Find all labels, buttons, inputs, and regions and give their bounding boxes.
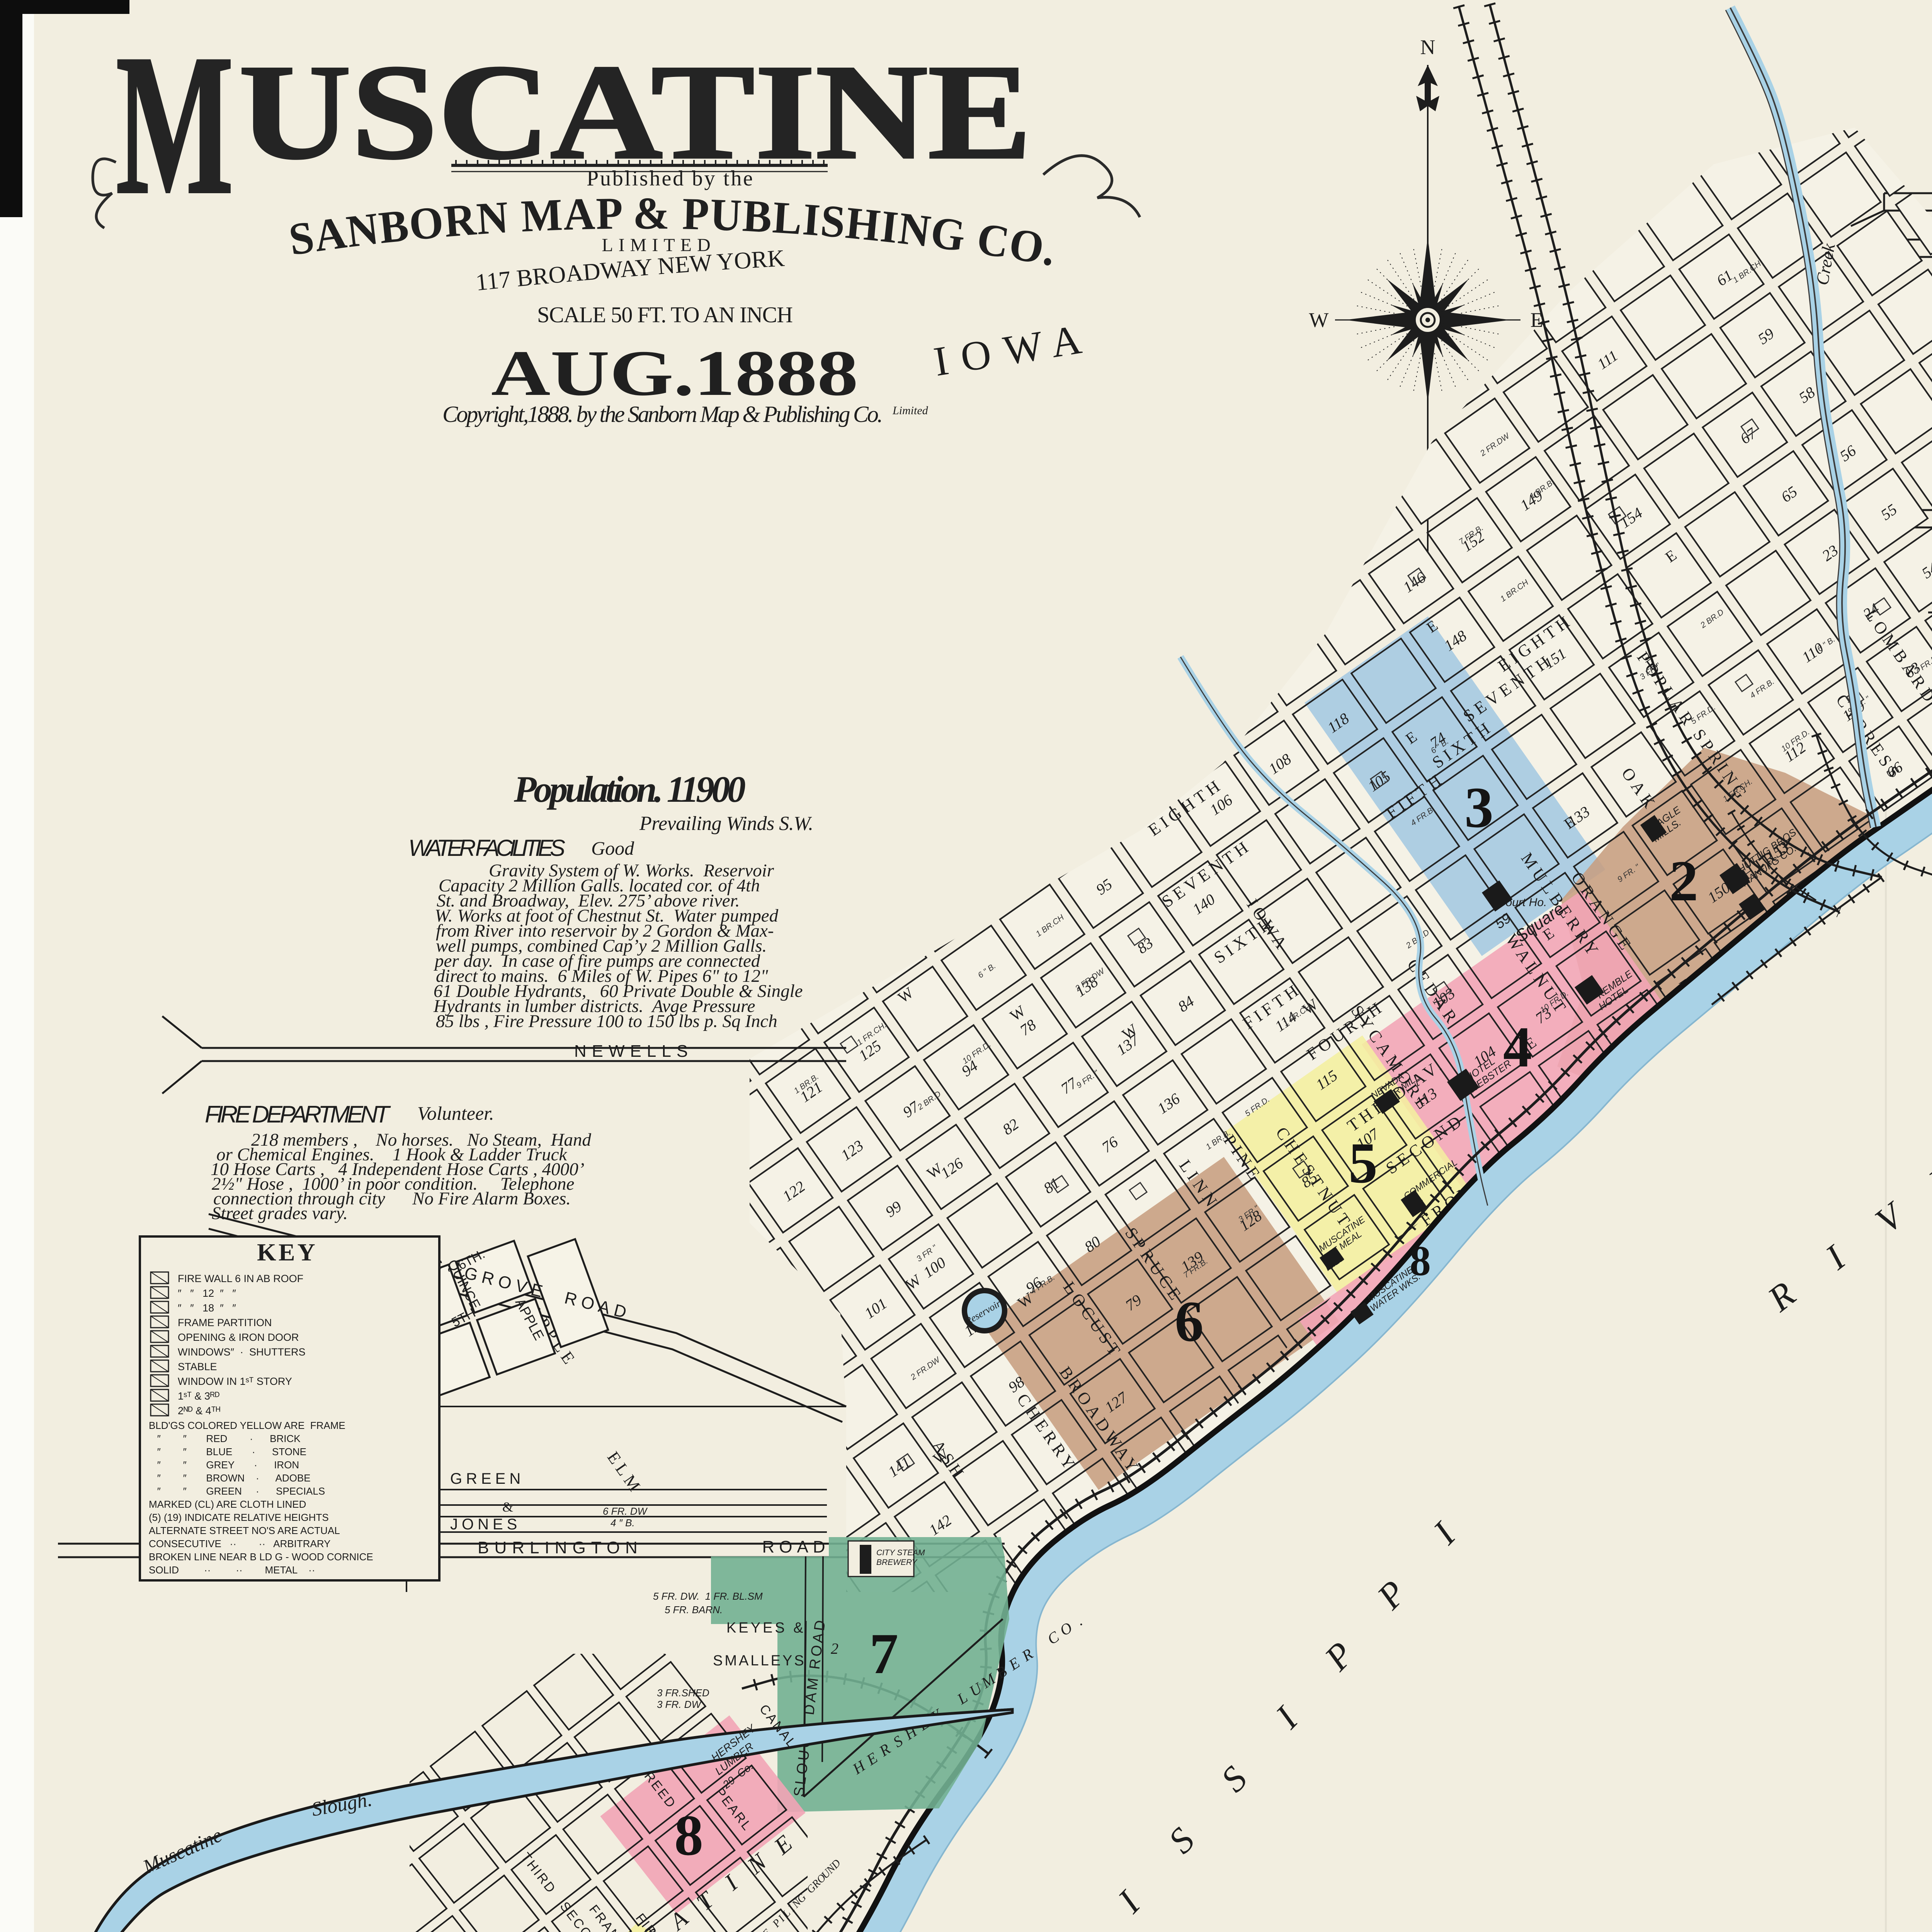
svg-text:2ᴺᴰ & 4ᵀᴴ: 2ᴺᴰ & 4ᵀᴴ xyxy=(178,1405,220,1417)
svg-text:Limited: Limited xyxy=(892,404,929,417)
svg-text:3 FR.SHED: 3 FR.SHED xyxy=(657,1687,709,1699)
svg-text:85 lbs , Fire Pressure 100 to: 85 lbs , Fire Pressure 100 to 150 lbs p.… xyxy=(436,1011,777,1031)
svg-text:3: 3 xyxy=(1464,776,1493,840)
svg-text:8: 8 xyxy=(674,1803,703,1867)
svg-text:″ ″ BROWN ·: ″ ″ BROWN · ADOBE xyxy=(149,1472,311,1484)
svg-text:GREEN: GREEN xyxy=(450,1470,524,1487)
svg-text:1ˢᵀ & 3ᴿᴰ: 1ˢᵀ & 3ᴿᴰ xyxy=(178,1390,219,1402)
svg-text:KEYES &: KEYES & xyxy=(726,1620,806,1636)
svg-text:ALTERNATE STREET NO'S ARE ACTU: ALTERNATE STREET NO'S ARE ACTUAL xyxy=(149,1525,340,1536)
svg-text:&: & xyxy=(502,1499,513,1515)
svg-text:(5) (19) INDICATE RELATIVE HEI: (5) (19) INDICATE RELATIVE HEIGHTS xyxy=(149,1512,329,1523)
svg-text:″ ″ GREY ·: ″ ″ GREY · IRON xyxy=(149,1459,299,1471)
svg-text:BURLINGTON: BURLINGTON xyxy=(478,1538,643,1557)
svg-text:7: 7 xyxy=(869,1622,898,1686)
svg-text:Volunteer.: Volunteer. xyxy=(417,1102,494,1124)
svg-text:″ ″ 12 ″ ″: ″ ″ 12 ″ ″ xyxy=(178,1287,236,1299)
svg-text:SMALLEYS: SMALLEYS xyxy=(713,1653,806,1669)
svg-text:JONES: JONES xyxy=(450,1516,521,1533)
svg-text:W: W xyxy=(1309,308,1329,332)
svg-text:WINDOW IN 1ˢᵀ STORY: WINDOW IN 1ˢᵀ STORY xyxy=(178,1376,292,1387)
svg-text:FRAME PARTITION: FRAME PARTITION xyxy=(178,1317,272,1328)
svg-text:5 FR. DW. 1 FR. BL.SM: 5 FR. DW. 1 FR. BL.SM xyxy=(653,1590,763,1602)
svg-text:STABLE: STABLE xyxy=(178,1361,217,1372)
svg-text:Population. 11900: Population. 11900 xyxy=(514,769,746,810)
svg-text:CONSECUTIVE ·· ·· A: CONSECUTIVE ·· ·· ARBITRARY xyxy=(149,1538,330,1549)
svg-text:N: N xyxy=(1420,36,1435,59)
svg-text:5 FR. BARN.: 5 FR. BARN. xyxy=(665,1604,723,1616)
svg-text:OPENING & IRON DOOR: OPENING & IRON DOOR xyxy=(178,1332,299,1343)
svg-text:Good: Good xyxy=(591,837,634,859)
svg-text:BROKEN LINE NEAR B LD G - WOOD: BROKEN LINE NEAR B LD G - WOOD CORNICE xyxy=(149,1551,373,1563)
svg-text:Prevailing Winds S.W.: Prevailing Winds S.W. xyxy=(639,813,813,835)
svg-text:MARKED (CL) ARE CLOTH LINED: MARKED (CL) ARE CLOTH LINED xyxy=(149,1498,306,1510)
svg-text:3 FR. DW: 3 FR. DW xyxy=(657,1699,702,1710)
svg-text:SCALE 50 FT. TO AN INCH: SCALE 50 FT. TO AN INCH xyxy=(537,302,795,327)
svg-text:2: 2 xyxy=(831,1640,838,1657)
svg-text:FIRE DEPARTMENT: FIRE DEPARTMENT xyxy=(205,1101,391,1128)
svg-text:SOLID ·· ··: SOLID ·· ·· METAL ·· xyxy=(149,1564,315,1576)
svg-text:WATER FACILITIES: WATER FACILITIES xyxy=(408,835,565,861)
svg-text:2: 2 xyxy=(1669,849,1698,913)
svg-text:″ ″ BLUE ·: ″ ″ BLUE · STONE xyxy=(149,1446,306,1458)
svg-text:BLD'GS COLORED YELLOW ARE FRA: BLD'GS COLORED YELLOW ARE FRAME xyxy=(149,1420,345,1431)
svg-text:Copyright,1888. by the Sanborn: Copyright,1888. by the Sanborn Map & Pub… xyxy=(442,401,883,427)
svg-text:WINDOWS″ · SHUTTERS: WINDOWS″ · SHUTTERS xyxy=(178,1346,306,1358)
svg-text:NEWELLS: NEWELLS xyxy=(574,1042,693,1061)
svg-text:FIRE WALL 6 IN AB ROOF: FIRE WALL 6 IN AB ROOF xyxy=(178,1273,303,1284)
svg-text:5: 5 xyxy=(1349,1131,1378,1195)
svg-text:KEY: KEY xyxy=(257,1238,318,1266)
svg-text:M: M xyxy=(116,13,233,236)
svg-text:BREWERY: BREWERY xyxy=(876,1558,918,1567)
svg-text:AUG.1888: AUG.1888 xyxy=(491,337,858,409)
svg-text:″ ″ 18 ″ ″: ″ ″ 18 ″ ″ xyxy=(178,1302,236,1314)
svg-text:″ ″ GREEN ·: ″ ″ GREEN · SPECIALS xyxy=(149,1485,325,1497)
svg-text:ROAD: ROAD xyxy=(762,1537,830,1556)
svg-text:6 FR. DW: 6 FR. DW xyxy=(603,1505,648,1517)
svg-text:4 ″ B.: 4 ″ B. xyxy=(611,1517,635,1529)
svg-text:CITY STEAM: CITY STEAM xyxy=(876,1548,925,1557)
svg-text:″ ″ RED ·: ″ ″ RED · BRICK xyxy=(149,1433,301,1444)
svg-text:6: 6 xyxy=(1175,1289,1204,1354)
